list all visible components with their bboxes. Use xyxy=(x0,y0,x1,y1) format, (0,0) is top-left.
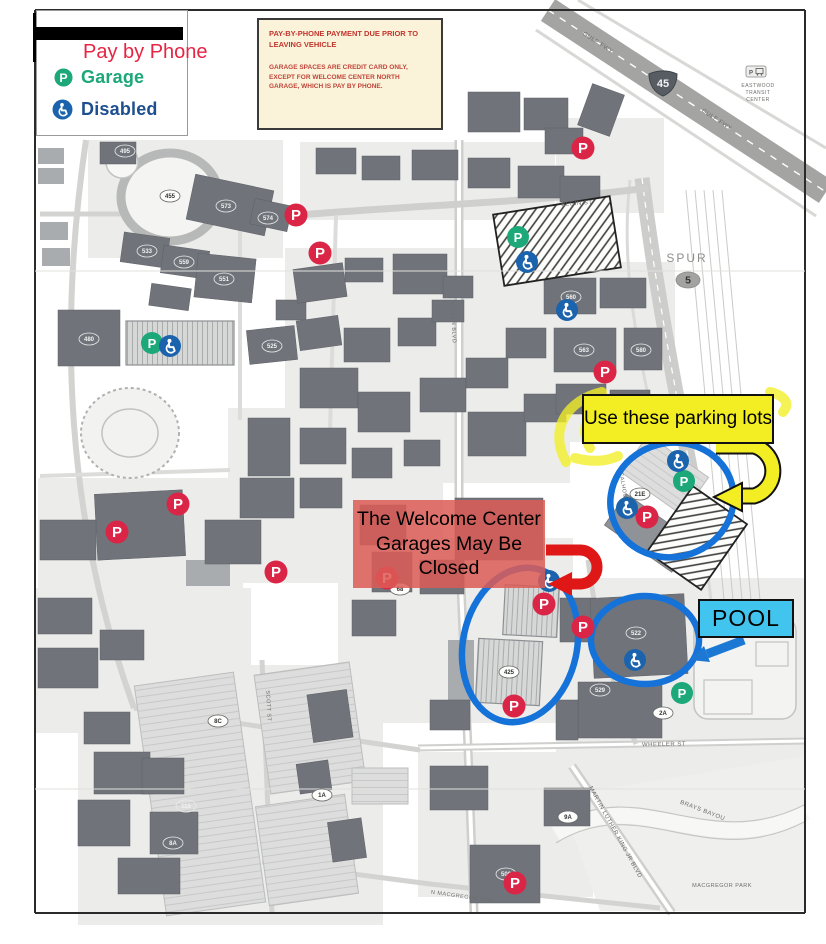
building xyxy=(345,258,383,282)
building xyxy=(393,254,447,294)
building-light xyxy=(38,148,64,164)
building xyxy=(412,150,458,180)
building xyxy=(358,392,410,432)
redaction-bar xyxy=(33,27,183,40)
bus-wheel-icon xyxy=(761,74,763,76)
building xyxy=(518,166,564,198)
building-number: 563 xyxy=(579,348,590,354)
building xyxy=(100,142,136,164)
building xyxy=(38,598,92,634)
payment-notice: PAY-BY-PHONE PAYMENT DUE PRIOR TO LEAVIN… xyxy=(257,18,443,130)
callout-welcome-center-closed: The Welcome Center Garages May Be Closed xyxy=(353,500,545,588)
campus-parking-map: 45SPUR5PGULF FWYGULF FWYELGIN STWHEELER … xyxy=(0,0,826,944)
legend-disabled-label: Disabled xyxy=(81,99,158,120)
building-light xyxy=(40,222,68,240)
parking-marker-red-letter: P xyxy=(291,207,301,224)
bus-wheel-icon xyxy=(757,74,759,76)
street-label: CENTER xyxy=(746,97,770,103)
building xyxy=(296,315,342,351)
parking-marker-red-letter: P xyxy=(578,619,588,636)
building-number: 495 xyxy=(120,149,131,155)
parking-marker-red-letter: P xyxy=(600,364,610,381)
building xyxy=(556,700,578,740)
callout-use-parking-lots: Use these parking lots xyxy=(582,394,774,444)
building xyxy=(352,448,392,478)
building xyxy=(327,818,366,862)
parking-marker-red-letter: P xyxy=(315,245,325,262)
building-number: 525 xyxy=(267,344,278,350)
building xyxy=(316,148,356,174)
building xyxy=(293,263,347,304)
garage-marker-letter: P xyxy=(680,474,689,489)
building-number: 574 xyxy=(263,216,274,222)
legend-garage-label: Garage xyxy=(81,67,144,88)
building xyxy=(248,418,290,476)
building xyxy=(468,92,520,132)
parking-marker-red-letter: P xyxy=(578,140,588,157)
building xyxy=(344,328,390,362)
building xyxy=(150,812,198,854)
building xyxy=(362,156,400,180)
notice-body: GARAGE SPACES ARE CREDIT CARD ONLY, EXCE… xyxy=(269,63,431,92)
building xyxy=(40,520,96,560)
building-number: 8C xyxy=(214,719,222,725)
map-canvas: 45SPUR5PGULF FWYGULF FWYELGIN STWHEELER … xyxy=(0,0,826,944)
parking-marker-red-letter: P xyxy=(539,596,549,613)
building xyxy=(468,158,510,188)
building-number: 480 xyxy=(84,337,95,343)
building-number: 533 xyxy=(142,249,153,255)
parking-marker-red-letter: P xyxy=(173,496,183,513)
building xyxy=(352,600,396,636)
parking-marker-red-letter: P xyxy=(509,698,519,715)
building-number: 21E xyxy=(635,492,646,498)
building xyxy=(94,752,150,794)
building-number: 1A xyxy=(318,793,326,799)
building xyxy=(84,712,130,744)
parking-marker-red-letter: P xyxy=(510,875,520,892)
building xyxy=(100,630,144,660)
transit-icon-p: P xyxy=(749,71,753,77)
building-number: 8A xyxy=(169,841,177,847)
building-number: 529 xyxy=(595,688,606,694)
redaction-tick xyxy=(33,13,36,62)
parking-marker-red-letter: P xyxy=(271,564,281,581)
building xyxy=(432,300,464,322)
svg-text:45: 45 xyxy=(657,78,669,90)
building xyxy=(300,478,342,508)
building-number: 9A xyxy=(564,815,572,821)
building xyxy=(300,368,358,408)
street-label: EASTWOOD xyxy=(741,83,774,89)
building-light xyxy=(42,248,70,266)
parking-lot xyxy=(352,768,408,804)
yellow-highlight-scribble xyxy=(575,456,618,461)
building-number: 68 xyxy=(397,587,404,593)
building xyxy=(524,98,568,130)
building xyxy=(78,800,130,846)
building xyxy=(466,358,508,388)
building-light xyxy=(38,168,64,184)
building xyxy=(307,689,353,742)
building-number: 559 xyxy=(179,260,190,266)
building xyxy=(404,440,440,466)
parking-marker-red-letter: P xyxy=(112,524,122,541)
building xyxy=(430,700,470,730)
building-number: 522 xyxy=(631,631,642,637)
street-label: TRANSIT xyxy=(746,90,771,96)
legend-disabled-row: Disabled xyxy=(52,99,158,120)
building-number: 425 xyxy=(504,670,515,676)
building xyxy=(506,328,546,358)
building xyxy=(240,478,294,518)
building-number: 580 xyxy=(636,348,647,354)
building xyxy=(300,428,346,464)
building-number: 455 xyxy=(165,194,176,200)
garage-marker-letter: P xyxy=(514,230,523,245)
disabled-icon xyxy=(52,99,73,120)
garage-marker-letter: P xyxy=(678,686,687,701)
garage-icon-letter: P xyxy=(59,71,67,85)
building xyxy=(420,378,466,412)
building xyxy=(578,682,662,738)
parking-marker-red-letter: P xyxy=(642,509,652,526)
building xyxy=(468,412,526,456)
building xyxy=(38,648,98,688)
building xyxy=(118,858,180,894)
building-number: 573 xyxy=(221,204,232,210)
garage-marker-letter: P xyxy=(148,336,157,351)
building xyxy=(600,278,646,308)
building-number: 115 xyxy=(181,804,191,810)
legend-garage-row: P Garage xyxy=(54,67,144,88)
notice-title: PAY-BY-PHONE PAYMENT DUE PRIOR TO LEAVIN… xyxy=(269,29,431,51)
spur-label: SPUR xyxy=(666,251,707,265)
street-label: WHEELER ST xyxy=(642,742,686,749)
building xyxy=(205,520,261,564)
street-label: MACGREGOR PARK xyxy=(692,883,752,889)
legend-pay-by-phone-label: Pay by Phone xyxy=(83,41,208,64)
building-number: 551 xyxy=(219,277,230,283)
spur-5-number: 5 xyxy=(685,275,691,287)
callout-pool: POOL xyxy=(698,599,794,638)
building xyxy=(443,276,473,298)
building xyxy=(398,318,436,346)
stadium xyxy=(81,388,179,478)
garage-icon: P xyxy=(54,68,73,87)
building xyxy=(430,766,488,810)
building-number: 2A xyxy=(659,711,667,717)
